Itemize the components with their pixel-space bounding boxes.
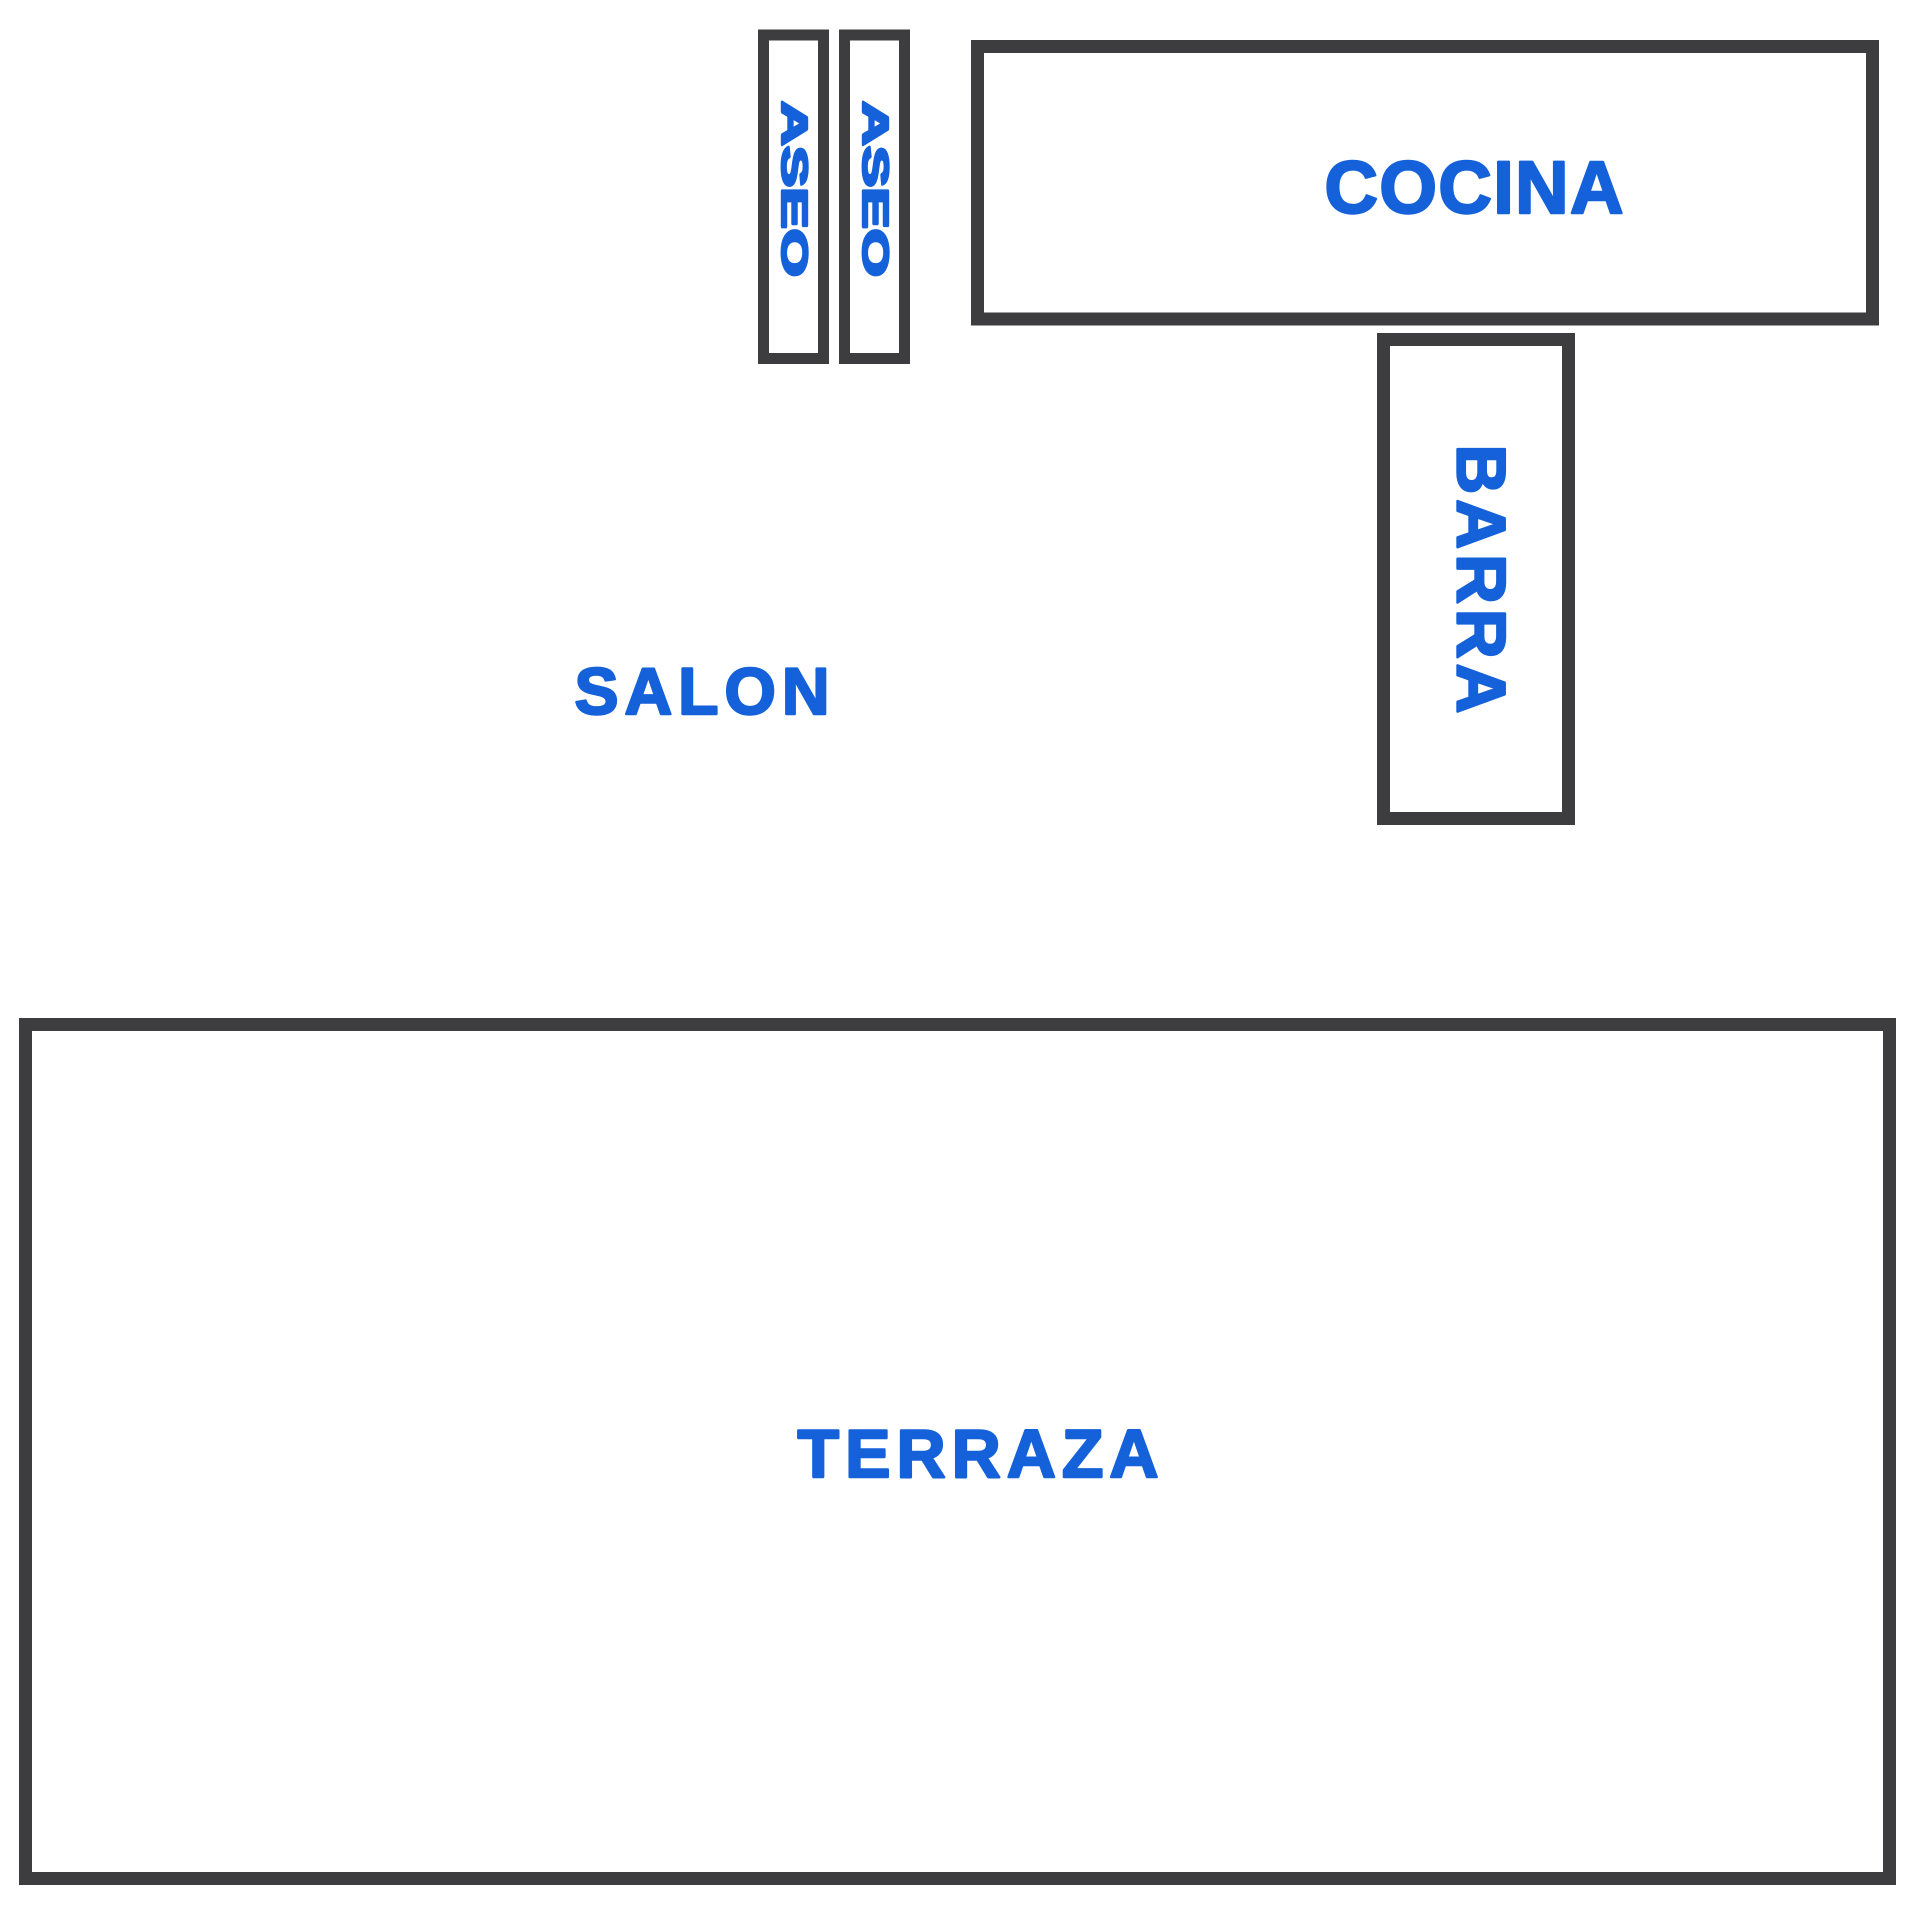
svg-text:BARRA: BARRA bbox=[1443, 445, 1520, 714]
svg-text:COCINA: COCINA bbox=[1325, 146, 1624, 229]
svg-text:ASEO: ASEO bbox=[855, 101, 896, 277]
svg-text:SALON: SALON bbox=[575, 654, 830, 728]
svg-text:ASEO: ASEO bbox=[774, 101, 815, 277]
